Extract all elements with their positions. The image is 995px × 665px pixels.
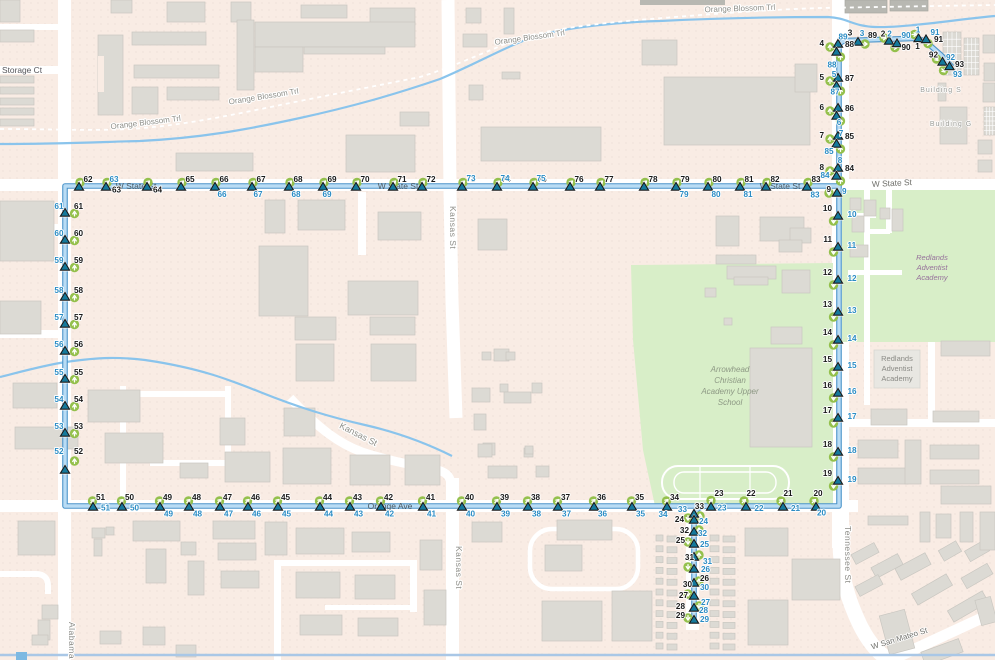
svg-text:Academy: Academy (881, 374, 913, 383)
svg-text:33: 33 (695, 502, 705, 511)
svg-text:83: 83 (810, 191, 820, 200)
svg-text:82: 82 (770, 175, 780, 184)
svg-text:39: 39 (500, 493, 510, 502)
svg-text:Kansas St: Kansas St (448, 206, 458, 249)
svg-text:80: 80 (711, 190, 721, 199)
svg-text:85: 85 (845, 132, 855, 141)
svg-text:33: 33 (678, 505, 688, 514)
svg-text:67: 67 (256, 175, 266, 184)
svg-text:3: 3 (848, 29, 853, 38)
svg-text:19: 19 (848, 475, 858, 484)
svg-text:9: 9 (826, 185, 831, 194)
svg-text:Adventist: Adventist (882, 364, 914, 373)
svg-text:Redlands: Redlands (916, 253, 948, 262)
svg-text:21: 21 (791, 504, 801, 513)
svg-text:50: 50 (125, 493, 135, 502)
svg-text:15: 15 (848, 361, 858, 370)
svg-text:Arrowhead: Arrowhead (710, 365, 750, 374)
svg-text:66: 66 (219, 175, 229, 184)
svg-text:6: 6 (837, 118, 842, 127)
svg-text:Redlands: Redlands (881, 354, 913, 363)
svg-text:50: 50 (130, 504, 140, 513)
svg-text:23: 23 (718, 504, 728, 513)
svg-text:56: 56 (74, 340, 84, 349)
svg-text:61: 61 (54, 202, 64, 211)
svg-text:49: 49 (164, 510, 174, 519)
svg-text:35: 35 (636, 510, 646, 519)
svg-text:80: 80 (712, 175, 722, 184)
svg-text:Adventist: Adventist (916, 263, 949, 272)
svg-text:77: 77 (604, 175, 614, 184)
svg-text:85: 85 (824, 147, 834, 156)
svg-text:W State St: W State St (872, 177, 913, 189)
svg-text:Kansas St: Kansas St (454, 546, 464, 589)
svg-text:51: 51 (96, 493, 106, 502)
svg-text:93: 93 (953, 70, 963, 79)
svg-text:5: 5 (832, 70, 837, 79)
svg-text:24: 24 (699, 517, 709, 526)
svg-text:57: 57 (74, 313, 84, 322)
svg-text:39: 39 (501, 510, 511, 519)
svg-text:48: 48 (192, 493, 202, 502)
svg-text:79: 79 (680, 175, 690, 184)
svg-text:44: 44 (324, 510, 334, 519)
svg-text:34: 34 (670, 493, 680, 502)
svg-text:66: 66 (217, 190, 227, 199)
svg-text:16: 16 (823, 381, 833, 390)
svg-text:52: 52 (74, 447, 84, 456)
svg-text:63: 63 (112, 186, 122, 195)
svg-text:42: 42 (385, 510, 395, 519)
svg-text:9: 9 (842, 187, 847, 196)
svg-text:40: 40 (465, 493, 475, 502)
svg-text:13: 13 (848, 306, 858, 315)
svg-text:55: 55 (54, 368, 64, 377)
svg-text:8: 8 (838, 156, 843, 165)
svg-text:38: 38 (532, 510, 542, 519)
svg-text:Alabama St: Alabama St (67, 622, 77, 660)
svg-text:75: 75 (536, 174, 546, 183)
svg-text:4: 4 (819, 39, 824, 48)
svg-text:64: 64 (153, 186, 163, 195)
svg-text:School: School (718, 398, 743, 407)
svg-text:93: 93 (955, 60, 965, 69)
svg-text:Storage Ct: Storage Ct (2, 65, 43, 75)
svg-text:46: 46 (251, 493, 261, 502)
svg-text:52: 52 (54, 447, 64, 456)
svg-text:54: 54 (74, 395, 84, 404)
svg-text:30: 30 (700, 583, 710, 592)
svg-text:37: 37 (562, 510, 572, 519)
svg-text:69: 69 (322, 190, 332, 199)
svg-text:10: 10 (848, 210, 858, 219)
svg-text:32: 32 (698, 529, 708, 538)
svg-text:40: 40 (466, 510, 476, 519)
svg-text:13: 13 (823, 300, 833, 309)
svg-text:16: 16 (848, 387, 858, 396)
svg-text:92: 92 (929, 51, 939, 60)
svg-text:42: 42 (384, 493, 394, 502)
svg-text:36: 36 (598, 510, 608, 519)
svg-text:23: 23 (714, 489, 724, 498)
svg-text:62: 62 (83, 175, 93, 184)
svg-text:67: 67 (253, 190, 263, 199)
svg-text:11: 11 (848, 241, 857, 250)
svg-text:3: 3 (860, 29, 865, 38)
svg-text:84: 84 (820, 171, 830, 180)
svg-text:56: 56 (54, 340, 64, 349)
svg-text:25: 25 (676, 536, 686, 545)
svg-text:34: 34 (658, 510, 668, 519)
svg-text:1: 1 (916, 26, 921, 35)
svg-text:53: 53 (74, 422, 84, 431)
svg-text:63: 63 (109, 175, 119, 184)
svg-text:59: 59 (54, 256, 64, 265)
svg-text:Building G: Building G (930, 121, 972, 128)
svg-text:51: 51 (101, 504, 111, 513)
svg-text:17: 17 (848, 412, 858, 421)
svg-text:29: 29 (676, 611, 686, 620)
svg-text:31: 31 (685, 553, 695, 562)
svg-text:68: 68 (291, 190, 301, 199)
svg-text:19: 19 (823, 469, 833, 478)
svg-text:29: 29 (700, 615, 710, 624)
svg-text:60: 60 (74, 229, 84, 238)
svg-text:26: 26 (700, 574, 710, 583)
svg-text:12: 12 (823, 268, 833, 277)
svg-text:60: 60 (54, 229, 64, 238)
svg-text:58: 58 (54, 286, 64, 295)
svg-text:91: 91 (934, 35, 944, 44)
svg-text:26: 26 (701, 565, 711, 574)
svg-text:21: 21 (783, 489, 793, 498)
svg-text:45: 45 (281, 493, 291, 502)
svg-text:22: 22 (746, 489, 756, 498)
svg-text:15: 15 (823, 355, 833, 364)
svg-text:48: 48 (193, 510, 203, 519)
svg-text:90: 90 (901, 31, 911, 40)
svg-text:74: 74 (500, 174, 510, 183)
svg-text:37: 37 (561, 493, 571, 502)
svg-text:18: 18 (823, 440, 833, 449)
svg-text:5: 5 (819, 73, 824, 82)
svg-text:65: 65 (185, 175, 195, 184)
svg-text:Tennessee St: Tennessee St (843, 526, 853, 584)
svg-text:2: 2 (887, 30, 892, 39)
svg-text:55: 55 (74, 368, 84, 377)
svg-text:10: 10 (823, 204, 833, 213)
svg-text:36: 36 (597, 493, 607, 502)
svg-text:6: 6 (819, 103, 824, 112)
svg-text:87: 87 (830, 88, 840, 97)
svg-text:73: 73 (466, 174, 476, 183)
svg-text:43: 43 (354, 510, 364, 519)
svg-text:25: 25 (700, 540, 710, 549)
svg-text:88: 88 (827, 61, 837, 70)
svg-text:41: 41 (427, 510, 437, 519)
svg-text:79: 79 (679, 190, 689, 199)
svg-text:41: 41 (426, 493, 436, 502)
svg-text:20: 20 (813, 489, 823, 498)
svg-text:89: 89 (868, 31, 878, 40)
svg-text:44: 44 (323, 493, 333, 502)
svg-text:Academy: Academy (915, 273, 949, 282)
svg-text:32: 32 (680, 526, 690, 535)
svg-text:68: 68 (293, 175, 303, 184)
svg-text:12: 12 (848, 274, 858, 283)
svg-text:28: 28 (699, 606, 709, 615)
svg-text:69: 69 (327, 175, 337, 184)
svg-text:7: 7 (819, 131, 824, 140)
svg-text:17: 17 (823, 406, 833, 415)
svg-text:81: 81 (744, 175, 754, 184)
svg-text:61: 61 (74, 202, 84, 211)
svg-text:24: 24 (675, 515, 685, 524)
svg-text:46: 46 (252, 510, 262, 519)
svg-text:45: 45 (282, 510, 292, 519)
svg-text:84: 84 (845, 164, 855, 173)
svg-text:70: 70 (360, 175, 370, 184)
svg-text:22: 22 (755, 504, 765, 513)
svg-text:14: 14 (848, 334, 858, 343)
svg-text:18: 18 (848, 446, 858, 455)
svg-text:87: 87 (845, 74, 855, 83)
svg-text:38: 38 (531, 493, 541, 502)
svg-text:20: 20 (817, 509, 827, 518)
svg-text:57: 57 (54, 313, 64, 322)
svg-text:76: 76 (574, 175, 584, 184)
svg-text:47: 47 (224, 510, 234, 519)
svg-text:89: 89 (838, 33, 848, 42)
svg-text:58: 58 (74, 286, 84, 295)
svg-text:81: 81 (743, 190, 753, 199)
svg-text:27: 27 (679, 591, 689, 600)
svg-text:71: 71 (397, 175, 407, 184)
svg-text:30: 30 (683, 580, 693, 589)
svg-text:Building S: Building S (920, 87, 962, 94)
svg-text:78: 78 (648, 175, 658, 184)
svg-text:54: 54 (54, 395, 64, 404)
svg-text:Academy Upper: Academy Upper (700, 387, 759, 396)
svg-text:2: 2 (881, 30, 886, 39)
svg-text:53: 53 (54, 422, 64, 431)
svg-text:7: 7 (839, 129, 844, 138)
svg-text:43: 43 (353, 493, 363, 502)
svg-text:35: 35 (635, 493, 645, 502)
svg-text:90: 90 (901, 43, 911, 52)
svg-text:47: 47 (223, 493, 233, 502)
svg-text:28: 28 (676, 602, 686, 611)
svg-text:14: 14 (823, 328, 833, 337)
svg-text:49: 49 (163, 493, 173, 502)
svg-text:11: 11 (823, 235, 832, 244)
svg-text:72: 72 (426, 175, 436, 184)
svg-text:Christian: Christian (714, 376, 746, 385)
svg-text:86: 86 (845, 104, 855, 113)
svg-text:59: 59 (74, 256, 84, 265)
svg-text:1: 1 (915, 42, 920, 51)
